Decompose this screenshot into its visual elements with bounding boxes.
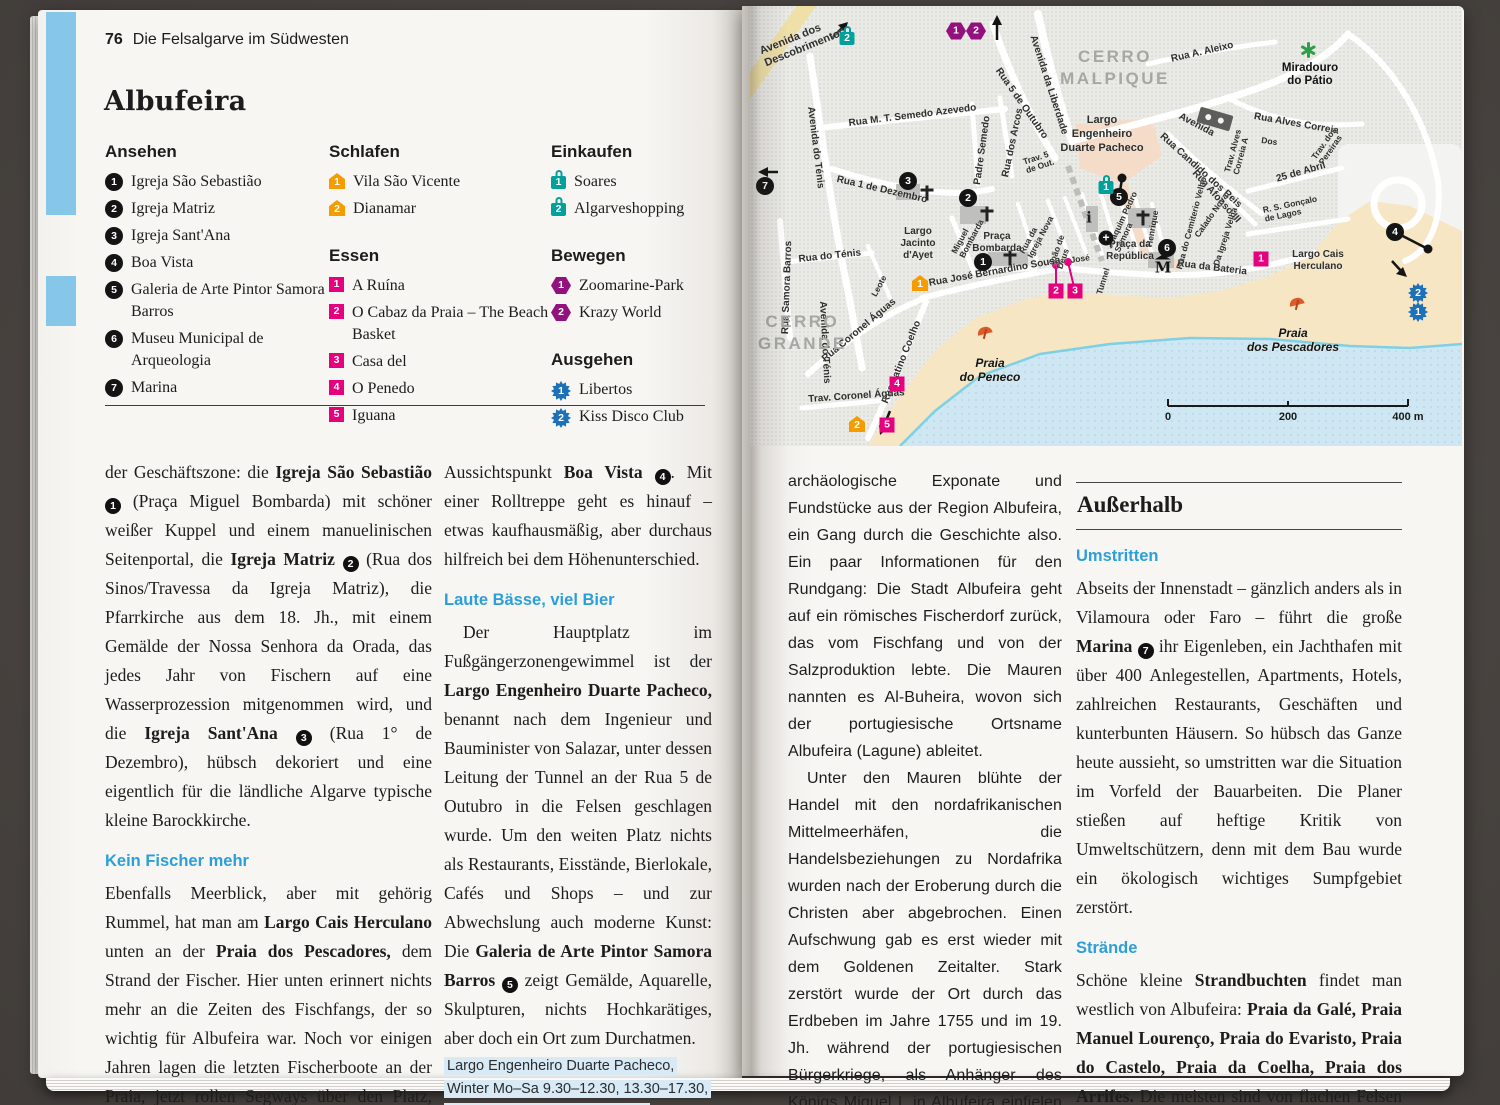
- map-marker-sight-1: 1: [974, 253, 992, 271]
- list-item-label: O Cabaz da Praia – The Beach Basket: [352, 302, 551, 346]
- map-marker-night-2: 2: [1408, 283, 1428, 303]
- map-label: Miradouro do Pátio: [1282, 62, 1338, 88]
- map-marker-sight-3: 3: [899, 172, 917, 190]
- page-title: Albufeira: [104, 86, 246, 117]
- list-item-label: Soares: [574, 171, 617, 193]
- list-item-label: O Penedo: [352, 378, 415, 400]
- map-label: Leote: [870, 274, 889, 298]
- directory-divider: [105, 405, 705, 406]
- list-item: 2Krazy World: [551, 302, 707, 324]
- info-box: Largo Engenheiro Duarte Pacheco, Winter …: [444, 1055, 712, 1105]
- paragraph: Unter den Mauren blühte der Handel mit d…: [788, 765, 1062, 1105]
- paragraph: Ebenfalls Meerblick, aber mit gehörig Ru…: [105, 879, 432, 1105]
- sight-marker-icon: 7: [105, 379, 123, 397]
- list-item: 1Libertos: [551, 379, 707, 401]
- sight-marker-icon: 1: [105, 173, 123, 191]
- subheading: Laute Bässe, viel Bier: [444, 591, 712, 611]
- map-labels-layer: Avenida dos DescobrimentosAvenida do Tén…: [750, 6, 1462, 446]
- list-item-label: Boa Vista: [131, 252, 193, 274]
- list-item-label: Igreja Matriz: [131, 198, 215, 220]
- inline-sight-badge: 4: [655, 469, 671, 485]
- map-label: Dos: [1261, 136, 1278, 147]
- section-title: Außerhalb: [1076, 482, 1402, 530]
- inline-sight-badge: 2: [343, 556, 359, 572]
- list-item: 4O Penedo: [329, 378, 551, 400]
- food-marker-icon: 4: [329, 380, 344, 395]
- list-item: 2Algarveshopping: [551, 198, 707, 220]
- move-marker-icon: 1: [551, 277, 571, 294]
- bold-term: Boa Vista: [564, 462, 643, 482]
- list-item: 2Igreja Matriz: [105, 198, 329, 220]
- list-item-label: A Ruína: [352, 275, 405, 297]
- map-marker-move-2: 2: [966, 23, 986, 40]
- bold-term: Galeria de Arte Pintor Samora Barros: [444, 941, 712, 990]
- list-item-label: Museu Municipal de Arqueologia: [131, 328, 329, 372]
- list-item-label: Vila São Vicente: [353, 171, 460, 193]
- paragraph: Der Hauptplatz im Fußgängerzonengewimmel…: [444, 618, 712, 1053]
- list-item-label: Kiss Disco Club: [579, 406, 684, 428]
- map-scale-label: 0: [1165, 412, 1171, 423]
- directory-heading: Ansehen: [105, 142, 329, 162]
- directory-column-3: Einkaufen1Soares2AlgarveshoppingBewegen1…: [551, 142, 707, 454]
- map-label: Largo Engenheiro Duarte Pacheco: [1060, 114, 1143, 155]
- list-item-label: Marina: [131, 377, 177, 399]
- bold-term: Marina: [1076, 636, 1132, 656]
- directory-column-2: Schlafen1Vila São Vicente2DianamarEssen1…: [329, 142, 551, 454]
- page-header: 76Die Felsalgarve im Südwesten: [105, 31, 349, 49]
- map-label: Rua do Ténis: [798, 247, 862, 265]
- list-item: 1Soares: [551, 171, 707, 193]
- shop-marker-icon: 1: [551, 176, 566, 189]
- food-marker-icon: 2: [329, 304, 344, 319]
- directory-heading: Bewegen: [551, 246, 707, 266]
- directory-column-1: Ansehen1Igreja São Sebastião2Igreja Matr…: [105, 142, 329, 454]
- beach-parasol-icon: [976, 325, 994, 339]
- map-label: Avenida dos Descobrimentos: [758, 14, 848, 71]
- sight-marker-icon: 6: [105, 330, 123, 348]
- left-page-text-column-1: der Geschäftszone: die Igreja São Sebast…: [105, 458, 432, 1105]
- subheading: Umstritten: [1076, 547, 1402, 567]
- list-item-label: Iguana: [352, 405, 396, 427]
- map-marker-food-5: 5: [880, 418, 895, 433]
- map-marker-sight-2: 2: [959, 189, 977, 207]
- page-stack-left-edge: [30, 16, 38, 1074]
- map-label: CERRO MALPIQUE: [1060, 46, 1170, 90]
- map-label: Rua A. Aleixo: [1170, 40, 1235, 66]
- church-icon: [1137, 211, 1150, 226]
- inline-sight-badge: 1: [105, 498, 121, 514]
- directory-group-schlafen: Schlafen1Vila São Vicente2Dianamar: [329, 142, 551, 220]
- bold-term: Largo Engenheiro Duarte Pacheco,: [444, 680, 712, 700]
- directory-group-bewegen: Bewegen1Zoomarine-Park2Krazy World: [551, 246, 707, 324]
- bold-term: Praia da Galé, Praia Manuel Lourenço, Pr…: [1076, 999, 1402, 1105]
- map-marker-food-1: 1: [1254, 252, 1269, 267]
- sight-marker-icon: 4: [105, 254, 123, 272]
- directory: Ansehen1Igreja São Sebastião2Igreja Matr…: [105, 142, 707, 454]
- list-item-label: Dianamar: [353, 198, 416, 220]
- directory-heading: Essen: [329, 246, 551, 266]
- list-item-label: Zoomarine-Park: [579, 275, 684, 297]
- info-box-text: Largo Engenheiro Duarte Pacheco, Winter …: [444, 1057, 711, 1105]
- map-marker-shop-2: 2: [840, 32, 855, 45]
- subheading: Strände: [1076, 939, 1402, 959]
- inline-sight-badge: 3: [296, 730, 312, 746]
- food-marker-icon: 5: [329, 407, 344, 422]
- right-page-text-column-2: AußerhalbUmstrittenAbseits der Innenstad…: [1076, 462, 1402, 1105]
- subheading: Kein Fischer mehr: [105, 852, 432, 872]
- map-label: Padre Semedo: [972, 115, 993, 185]
- directory-group-ansehen: Ansehen1Igreja São Sebastião2Igreja Matr…: [105, 142, 329, 399]
- shop-marker-icon: 2: [551, 203, 566, 216]
- list-item: 5Galeria de Arte Pintor Samora Barros: [105, 279, 329, 323]
- paragraph: archäologische Exponate und Fundstücke a…: [788, 468, 1062, 765]
- map-marker-night-1: 1: [1408, 302, 1428, 322]
- map-label: Rua José Bernardino Sousa: [928, 255, 1061, 289]
- map-marker-hotel-2: 2: [849, 416, 865, 432]
- viewpoint-icon: [1299, 41, 1317, 59]
- map-label: Trav. Alves Correia A: [1223, 129, 1252, 176]
- list-item: 4Boa Vista: [105, 252, 329, 274]
- list-item-label: Krazy World: [579, 302, 661, 324]
- map-marker-shop-1: 1: [1099, 181, 1114, 194]
- list-item-label: Igreja São Sebastião: [131, 171, 262, 193]
- list-item-label: Algarveshopping: [574, 198, 684, 220]
- chapter-tab-marker: [46, 12, 76, 215]
- list-item: 3Igreja Sant'Ana: [105, 225, 329, 247]
- church-icon: [981, 207, 994, 222]
- list-item: 5Iguana: [329, 405, 551, 427]
- map-label: Praia do Peneco: [960, 356, 1021, 385]
- map-scale-label: 200: [1279, 412, 1297, 423]
- list-item-label: Casa del: [352, 351, 407, 373]
- sight-marker-icon: 5: [105, 281, 123, 299]
- map-label: Trav. 5 de Out.: [1022, 149, 1056, 176]
- map-marker-move-1: 1: [946, 23, 966, 40]
- inline-sight-badge: 5: [502, 977, 518, 993]
- map-marker-sight-4: 4: [1386, 223, 1404, 241]
- church-icon: [921, 186, 934, 201]
- directory-group-einkaufen: Einkaufen1Soares2Algarveshopping: [551, 142, 707, 220]
- map-label: R. S. Gonçalo de Lagos: [1262, 195, 1320, 225]
- sight-marker-icon: 2: [105, 200, 123, 218]
- list-item: 6Museu Municipal de Arqueologia: [105, 328, 329, 372]
- map-label: Tunnel: [1095, 267, 1112, 296]
- paragraph: Abseits der Innenstadt – gänzlich anders…: [1076, 574, 1402, 922]
- paragraph: der Geschäftszone: die Igreja São Sebast…: [105, 458, 432, 835]
- map-marker-hotel-1: 1: [912, 275, 928, 291]
- museum-icon: M: [1155, 261, 1172, 276]
- page-number: 76: [105, 31, 123, 48]
- map-label: Rua M. T. Semedo Azevedo: [848, 102, 977, 129]
- directory-group-essen: Essen1A Ruína2O Cabaz da Praia – The Bea…: [329, 246, 551, 427]
- information-icon: i: [1086, 211, 1092, 226]
- chapter-tab-marker-small: [46, 276, 76, 326]
- map-marker-sight-7: 7: [756, 177, 774, 195]
- map-marker-sight-6: 6: [1158, 239, 1176, 257]
- map-label: Largo Cais Herculano: [1292, 249, 1344, 273]
- beach-parasol-icon: [1288, 296, 1306, 310]
- food-marker-icon: 1: [329, 277, 344, 292]
- right-page-text-column-1: archäologische Exponate und Fundstücke a…: [788, 468, 1062, 1105]
- city-map: Avenida dos DescobrimentosAvenida do Tén…: [750, 6, 1462, 446]
- list-item-label: Libertos: [579, 379, 632, 401]
- chapter-title: Die Felsalgarve im Südwesten: [133, 31, 349, 48]
- map-label: Avenida do Ténis: [805, 106, 826, 189]
- bold-term: Praia dos Pescadores,: [216, 941, 391, 961]
- list-item-label: Galeria de Arte Pintor Samora Barros: [131, 279, 329, 323]
- bold-term: Strandbuchten: [1195, 970, 1307, 990]
- map-label: 25 de Abril: [1275, 160, 1327, 185]
- list-item: 3Casa del: [329, 351, 551, 373]
- list-item: 2Kiss Disco Club: [551, 406, 707, 428]
- paragraph: Aussichtspunkt Boa Vista 4. Mit einer Ro…: [444, 458, 712, 574]
- directory-heading: Schlafen: [329, 142, 551, 162]
- paragraph: Schöne kleine Strandbuchten findet man w…: [1076, 966, 1402, 1105]
- map-label: Praia dos Pescadores: [1247, 326, 1339, 355]
- list-item: 7Marina: [105, 377, 329, 399]
- move-marker-icon: 2: [551, 304, 571, 321]
- hotel-marker-icon: 2: [329, 200, 345, 216]
- directory-heading: Ausgehen: [551, 350, 707, 370]
- list-item: 1Igreja São Sebastião: [105, 171, 329, 193]
- list-item: 2Dianamar: [329, 198, 551, 220]
- map-marker-food-3: 3: [1068, 284, 1083, 299]
- map-scale-label: 400 m: [1392, 412, 1423, 423]
- map-label: Praça da República: [1106, 239, 1154, 263]
- hotel-marker-icon: 1: [329, 173, 345, 189]
- inline-sight-badge: 7: [1138, 643, 1154, 659]
- map-marker-food-2: 2: [1049, 284, 1064, 299]
- map-label: Rua dos Arcos: [1000, 107, 1026, 178]
- left-page-text-column-2: Aussichtspunkt Boa Vista 4. Mit einer Ro…: [444, 458, 712, 1105]
- night-marker-icon: 1: [551, 381, 571, 401]
- map-label: José: [1070, 253, 1090, 265]
- bold-term: Igreja São Sebastião: [275, 462, 432, 482]
- map-marker-food-4: 4: [890, 377, 905, 392]
- sight-marker-icon: 3: [105, 227, 123, 245]
- first-aid-icon: +: [1099, 231, 1114, 246]
- map-label: CERRO GRANDE: [758, 311, 847, 355]
- night-marker-icon: 2: [551, 408, 571, 428]
- bold-term: Igreja Sant'Ana: [144, 723, 277, 743]
- map-label: Largo Jacinto d'Ayet: [900, 226, 935, 262]
- bold-term: Largo Cais Herculano: [264, 912, 432, 932]
- book-spread-photo: 76Die Felsalgarve im Südwesten Albufeira…: [0, 0, 1500, 1105]
- food-marker-icon: 3: [329, 353, 344, 368]
- list-item: 1Vila São Vicente: [329, 171, 551, 193]
- list-item-label: Igreja Sant'Ana: [131, 225, 230, 247]
- list-item: 1Zoomarine-Park: [551, 275, 707, 297]
- bold-term: Igreja Matriz: [230, 549, 334, 569]
- directory-group-ausgehen: Ausgehen1Libertos2Kiss Disco Club: [551, 350, 707, 428]
- list-item: 1A Ruína: [329, 275, 551, 297]
- directory-heading: Einkaufen: [551, 142, 707, 162]
- list-item: 2O Cabaz da Praia – The Beach Basket: [329, 302, 551, 346]
- church-icon: [1004, 251, 1017, 266]
